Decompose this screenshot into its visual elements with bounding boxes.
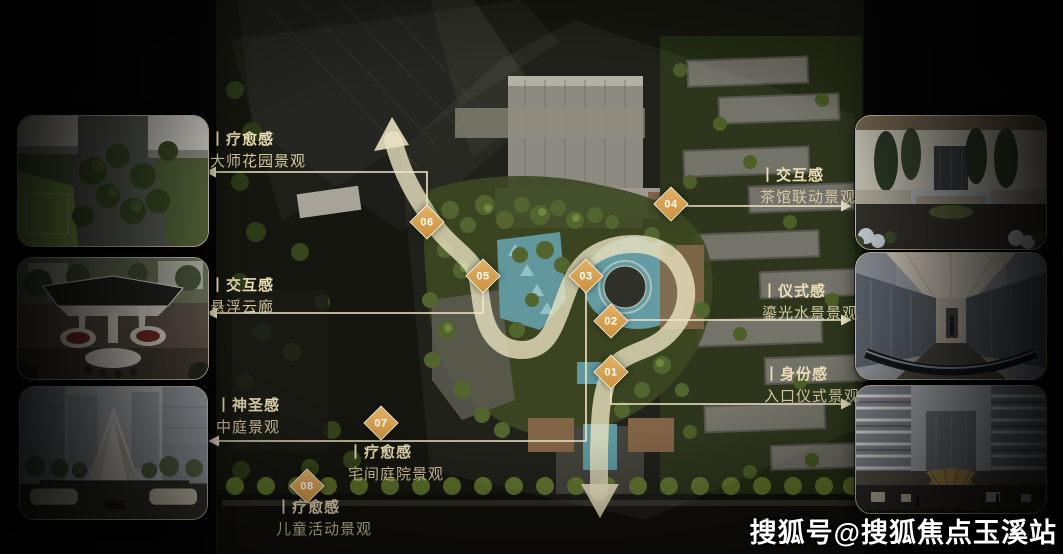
callout-category: 丨疗愈感 [348,444,444,463]
callout-category: 丨疗愈感 [210,131,306,150]
callout-cloud-corridor: 丨交互感 悬浮云廊 [210,277,274,318]
masterplan-poster: 丨疗愈感 大师花园景观 丨交互感 悬浮云廊 丨神圣感 中庭景观 丨疗愈感 宅间庭… [0,0,1063,554]
thumbnail-water-feature [855,252,1047,380]
marker-number: 08 [296,475,319,498]
callout-title: 儿童活动景观 [276,521,372,540]
callout-title: 宅间庭院景观 [348,466,444,485]
thumbnail-teahouse-courtyard [855,115,1047,250]
callout-atrium: 丨神圣感 中庭景观 [216,397,280,438]
marker-number: 06 [416,211,439,234]
callout-house-courtyard: 丨疗愈感 宅间庭院景观 [348,444,444,485]
callout-title: 大师花园景观 [210,153,306,172]
marker-number: 05 [472,265,495,288]
callout-teahouse: 丨交互感 茶馆联动景观 [760,167,856,208]
marker-number: 04 [660,193,683,216]
callout-title: 悬浮云廊 [210,299,274,318]
callout-title: 入口仪式景观 [764,388,860,407]
thumbnail-cloud-corridor [17,257,209,380]
thumbnail-entrance-gateway [855,385,1047,514]
marker-number: 03 [575,265,598,288]
callout-master-garden: 丨疗愈感 大师花园景观 [210,131,306,172]
callout-entrance: 丨身份感 入口仪式景观 [764,366,860,407]
callout-title: 鎏光水景景观 [762,305,858,324]
site-highlight [400,20,855,520]
callout-category: 丨身份感 [764,366,860,385]
marker-number: 01 [600,361,623,384]
callout-category: 丨交互感 [760,167,856,186]
callout-category: 丨交互感 [210,277,274,296]
marker-number: 07 [370,412,393,435]
callout-category: 丨仪式感 [762,283,858,302]
callout-category: 丨疗愈感 [276,499,372,518]
callout-water-feature: 丨仪式感 鎏光水景景观 [762,283,858,324]
watermark: 搜狐号@搜狐焦点玉溪站 [750,511,1057,550]
callout-title: 茶馆联动景观 [760,189,856,208]
callout-children-play: 丨疗愈感 儿童活动景观 [276,499,372,540]
callout-title: 中庭景观 [216,419,280,438]
thumbnail-master-garden [17,115,209,247]
thumbnail-atrium-sculpture [19,386,208,520]
callout-category: 丨神圣感 [216,397,280,416]
marker-number: 02 [600,310,623,333]
